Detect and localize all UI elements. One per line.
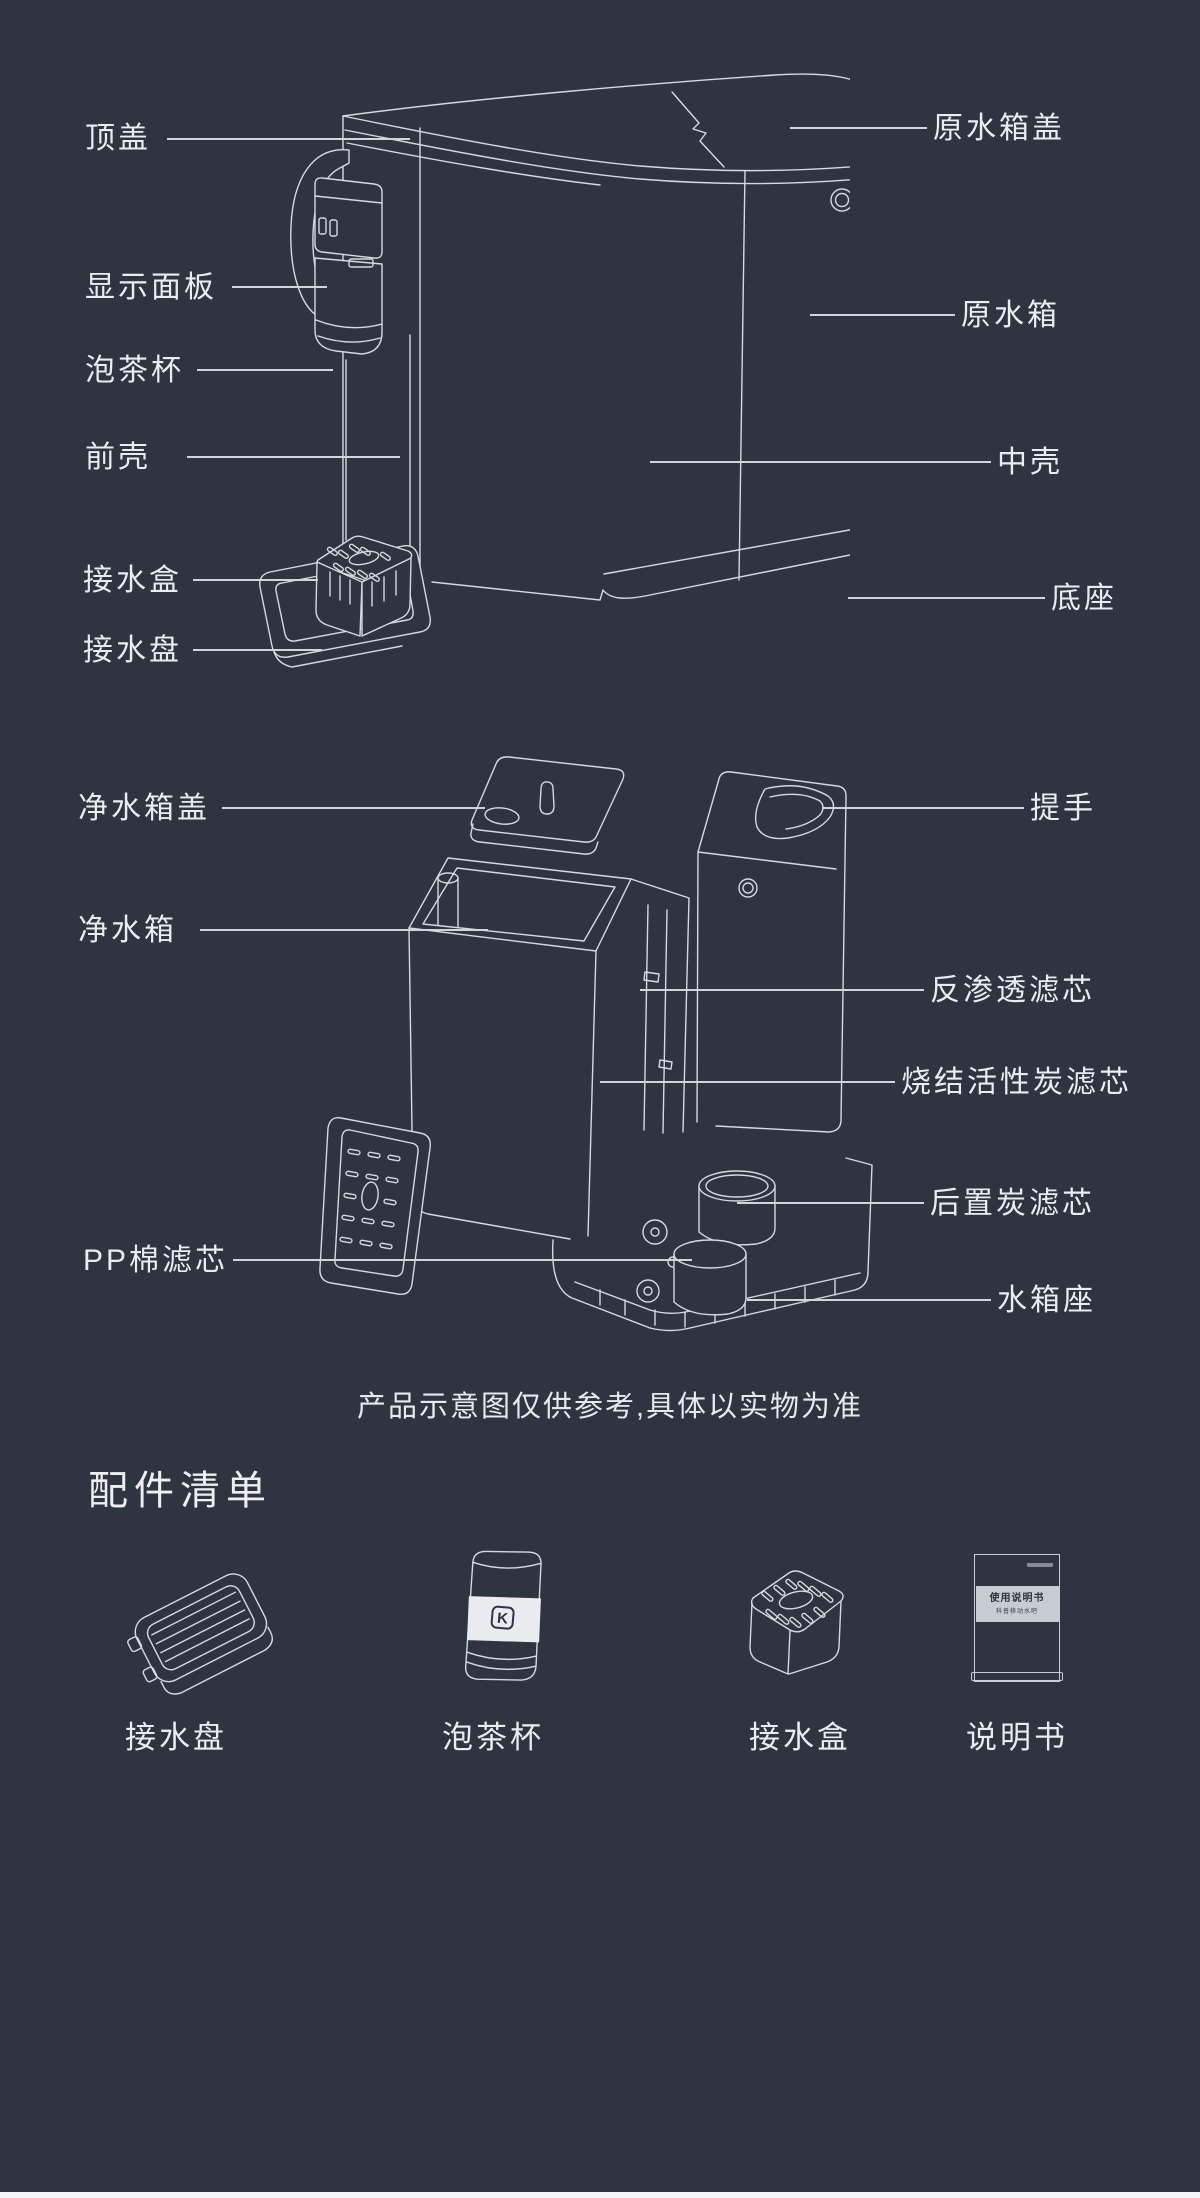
label-rear-carbon-filter: 后置炭滤芯 (930, 1188, 1095, 1220)
label-tank-base: 水箱座 (997, 1285, 1096, 1317)
label-base: 底座 (1051, 583, 1117, 615)
leader-sintered-carbon-filter (600, 1081, 895, 1083)
label-raw-tank-cover: 原水箱盖 (933, 113, 1065, 145)
product-parts-infographic: 顶盖 显示面板 泡茶杯 前壳 接水盒 接水盘 原水箱盖 原水箱 中壳 底座 净水… (0, 0, 1200, 2198)
manual-title: 使用说明书 (990, 1593, 1045, 1605)
cup-logo: K (496, 1610, 508, 1628)
leader-rear-carbon-filter (737, 1202, 924, 1204)
leader-drip-tray (193, 649, 322, 651)
label-ro-filter: 反渗透滤芯 (930, 975, 1095, 1007)
leader-tea-cup (197, 369, 333, 371)
leader-handle (822, 807, 1024, 809)
assembled-unit-drawing (230, 60, 850, 710)
leader-ro-filter (640, 989, 924, 991)
leader-display-panel (232, 286, 327, 288)
label-top-cover: 顶盖 (85, 123, 151, 155)
label-sintered-carbon-filter: 烧结活性炭滤芯 (901, 1067, 1132, 1099)
leader-top-cover (167, 138, 410, 140)
tea-cup-icon: K (446, 1543, 556, 1695)
rear-carbon-filter-shape (699, 1171, 775, 1245)
label-front-shell: 前壳 (85, 442, 151, 474)
manual-title-band: 使用说明书 科普移动水吧 (976, 1586, 1059, 1622)
leader-water-box (193, 579, 318, 581)
disclaimer-text: 产品示意图仅供参考,具体以实物为准 (240, 1383, 980, 1425)
page-bottom-strip (0, 2192, 1200, 2198)
clean-tank-shape (409, 858, 689, 1239)
leader-raw-tank (810, 314, 955, 316)
label-clean-tank-cover: 净水箱盖 (78, 793, 210, 825)
label-water-box: 接水盒 (83, 565, 182, 597)
leader-middle-shell (650, 461, 991, 463)
accessories-heading: 配件清单 (88, 1458, 272, 1516)
leader-clean-tank-cover (222, 807, 485, 809)
manual-subtitle: 科普移动水吧 (996, 1608, 1038, 1616)
label-handle: 提手 (1030, 793, 1096, 825)
drip-tray-icon (110, 1548, 290, 1703)
label-middle-shell: 中壳 (997, 447, 1063, 479)
accessory-label-drip-tray: 接水盘 (116, 1712, 236, 1757)
label-raw-tank: 原水箱 (961, 300, 1060, 332)
clean-tank-lid-shape (471, 757, 624, 854)
leader-pp-cotton-filter (233, 1259, 692, 1261)
raw-tank-shape (697, 772, 846, 1132)
accessory-label-water-box: 接水盒 (740, 1712, 860, 1757)
manual-icon: 使用说明书 科普移动水吧 (974, 1554, 1060, 1682)
label-tea-cup: 泡茶杯 (85, 355, 184, 387)
leader-base (848, 597, 1045, 599)
exploded-drip-tray-shape (320, 1118, 430, 1295)
label-clean-tank: 净水箱 (78, 915, 177, 947)
label-display-panel: 显示面板 (85, 272, 217, 304)
leader-front-shell (187, 456, 400, 458)
label-pp-cotton-filter: PP棉滤芯 (83, 1245, 228, 1277)
accessory-label-manual: 说明书 (957, 1712, 1077, 1757)
water-box-icon (723, 1552, 863, 1690)
manual-base-lip (971, 1672, 1063, 1681)
leader-raw-tank-cover (790, 127, 927, 129)
label-drip-tray: 接水盘 (83, 635, 182, 667)
accessory-label-tea-cup: 泡茶杯 (433, 1712, 553, 1757)
pp-cotton-filter-shape (674, 1240, 746, 1315)
brand-logo-mark (1027, 1563, 1053, 1567)
leader-clean-tank (200, 929, 488, 931)
leader-tank-base (747, 1299, 991, 1301)
